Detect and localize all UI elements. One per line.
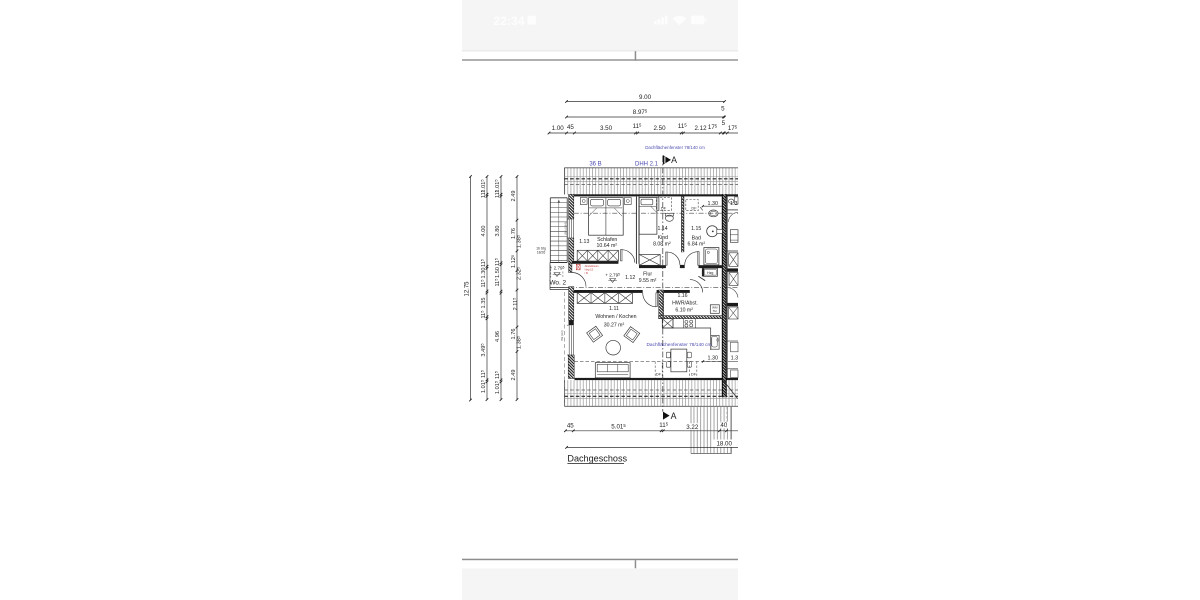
svg-text:+ 2.795: + 2.795	[550, 265, 565, 270]
svg-text:1.12: 1.12	[625, 275, 635, 281]
svg-text:18/26: 18/26	[537, 250, 546, 254]
svg-text:1.30: 1.30	[708, 355, 719, 361]
svg-text:Hzg 15: Hzg 15	[585, 267, 594, 271]
svg-text:22:34: 22:34	[493, 14, 524, 28]
svg-text:1.30: 1.30	[481, 268, 487, 279]
svg-text:4.96: 4.96	[495, 331, 501, 342]
svg-text:18.00: 18.00	[716, 441, 732, 448]
svg-text:Wo. 2: Wo. 2	[550, 279, 567, 286]
svg-text:45: 45	[567, 124, 574, 131]
svg-text:6.10 m²: 6.10 m²	[675, 308, 693, 314]
svg-text:9.55 m²: 9.55 m²	[639, 278, 657, 284]
svg-text:1.35: 1.35	[481, 298, 487, 309]
svg-text:2.12: 2.12	[694, 125, 707, 132]
svg-text:45: 45	[567, 423, 574, 430]
svg-text:1.15: 1.15	[691, 226, 701, 232]
svg-text:Abstellraum: Abstellraum	[585, 264, 600, 268]
svg-text:4.00: 4.00	[481, 226, 487, 237]
svg-text:6.84 m²: 6.84 m²	[688, 241, 706, 247]
svg-text:A: A	[671, 155, 677, 165]
svg-text:1.30: 1.30	[708, 201, 719, 207]
svg-text:1.13: 1.13	[579, 239, 589, 245]
svg-text:1.16: 1.16	[677, 293, 687, 299]
svg-text:1.3: 1.3	[731, 355, 739, 361]
svg-text:DF: DF	[661, 206, 667, 211]
svg-text:Hzg: Hzg	[707, 271, 713, 275]
svg-text:HWR/Abst.: HWR/Abst.	[672, 301, 698, 307]
svg-text:1.50: 1.50	[495, 267, 501, 278]
svg-text:9.00: 9.00	[639, 94, 652, 101]
svg-text:DF: DF	[691, 372, 697, 377]
svg-text:10.64 m²: 10.64 m²	[597, 243, 618, 249]
svg-text:2.49: 2.49	[511, 370, 517, 381]
svg-text:DF: DF	[656, 372, 662, 377]
svg-text:i B: i B	[585, 271, 588, 275]
svg-text:Dachflächenfenster 78/140 cm: Dachflächenfenster 78/140 cm	[645, 145, 705, 150]
svg-text:+ 2.795: + 2.795	[605, 273, 620, 278]
svg-text:Blk (Lkl): Blk (Lkl)	[560, 330, 564, 340]
svg-text:30.27 m²: 30.27 m²	[604, 323, 625, 329]
svg-text:12.75: 12.75	[465, 281, 471, 297]
svg-text:1.11: 1.11	[609, 306, 619, 312]
svg-text:(Brh 0.94): (Brh 0.94)	[564, 222, 568, 235]
svg-text:Flur: Flur	[643, 272, 652, 278]
svg-text:8.08 m²: 8.08 m²	[653, 241, 671, 247]
svg-text:Dachgeschoss: Dachgeschoss	[567, 454, 627, 464]
svg-text:5: 5	[722, 120, 726, 127]
svg-text:1.00: 1.00	[552, 125, 565, 132]
svg-text:36 B: 36 B	[589, 162, 601, 168]
svg-text:Schlafen: Schlafen	[597, 237, 617, 243]
svg-text:1.3: 1.3	[730, 201, 738, 207]
svg-text:Dachflächenfenster 78/140 cm: Dachflächenfenster 78/140 cm	[646, 342, 711, 348]
svg-text:Wohnen / Kochen: Wohnen / Kochen	[595, 314, 636, 320]
svg-text:3.80: 3.80	[495, 226, 501, 237]
svg-text:5: 5	[721, 106, 725, 113]
svg-text:2.49: 2.49	[511, 191, 517, 202]
svg-text:A: A	[671, 411, 677, 421]
svg-text:3.50: 3.50	[600, 125, 613, 132]
svg-text:DF: DF	[691, 206, 697, 211]
svg-text:2.50: 2.50	[653, 125, 666, 132]
svg-text:Tkr: Tkr	[713, 309, 717, 313]
svg-text:DHH 2.1: DHH 2.1	[635, 162, 659, 168]
svg-text:3.22: 3.22	[686, 424, 699, 431]
